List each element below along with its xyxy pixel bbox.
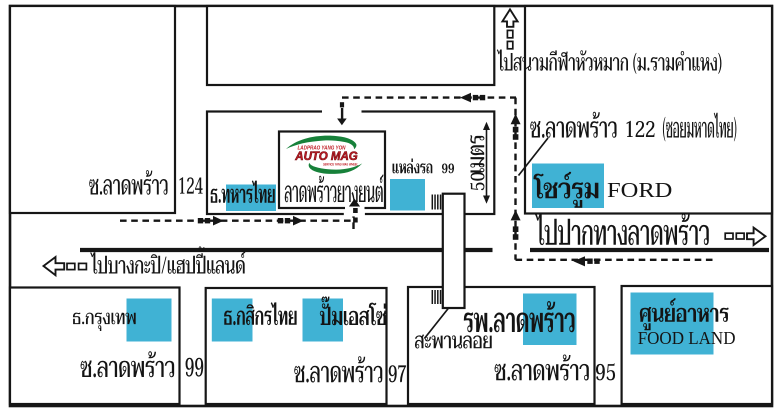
svg-text:FOOD LAND: FOOD LAND — [638, 328, 736, 348]
svg-text:FORD: FORD — [607, 178, 672, 202]
svg-text:SERVICE YANG MAG WHEEL: SERVICE YANG MAG WHEEL — [323, 161, 358, 166]
